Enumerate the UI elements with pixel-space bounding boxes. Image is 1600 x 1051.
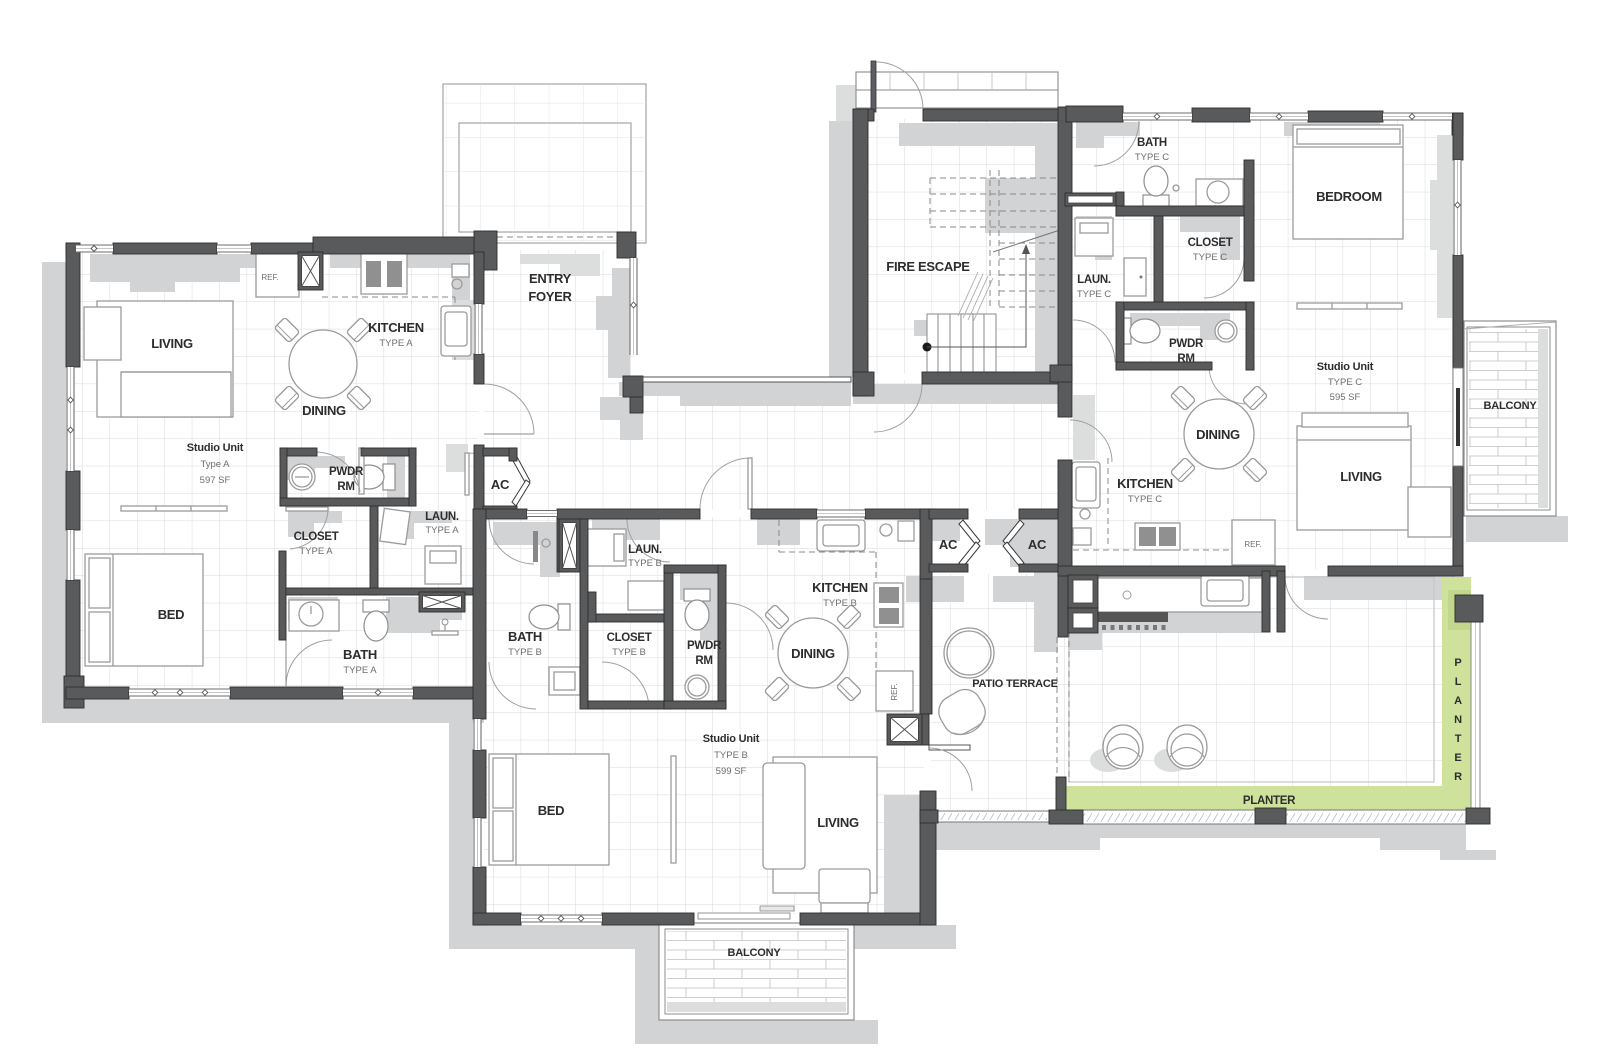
svg-text:T: T [1455, 733, 1462, 745]
svg-text:R: R [1454, 771, 1462, 783]
svg-text:TYPE A: TYPE A [299, 546, 333, 557]
svg-text:TYPE A: TYPE A [425, 525, 459, 536]
svg-text:A: A [1454, 695, 1462, 707]
svg-text:AC: AC [939, 537, 958, 552]
svg-text:CLOSET: CLOSET [607, 632, 652, 644]
svg-text:LIVING: LIVING [1340, 469, 1382, 484]
svg-text:TYPE A: TYPE A [379, 338, 413, 349]
svg-text:BALCONY: BALCONY [1484, 400, 1538, 412]
svg-text:Type A: Type A [200, 459, 230, 470]
svg-text:ENTRY: ENTRY [529, 271, 572, 286]
svg-text:TYPE C: TYPE C [1128, 494, 1162, 505]
svg-text:Studio Unit: Studio Unit [187, 442, 244, 454]
svg-text:BATH: BATH [343, 647, 377, 662]
svg-text:DINING: DINING [302, 403, 346, 418]
svg-text:DINING: DINING [1196, 427, 1240, 442]
svg-text:TYPE C: TYPE C [1328, 377, 1362, 388]
svg-text:REF.: REF. [261, 273, 278, 282]
svg-text:PWDR: PWDR [329, 466, 364, 478]
svg-text:Studio Unit: Studio Unit [703, 733, 760, 745]
svg-text:AC: AC [1028, 537, 1047, 552]
svg-text:TYPE C: TYPE C [1077, 289, 1111, 300]
svg-text:KITCHEN: KITCHEN [1117, 476, 1173, 491]
svg-text:FIRE ESCAPE: FIRE ESCAPE [886, 259, 970, 274]
svg-text:TYPE C: TYPE C [1193, 252, 1227, 263]
svg-text:PLANTER: PLANTER [1243, 795, 1296, 807]
svg-text:599 SF: 599 SF [716, 766, 747, 777]
svg-text:595 SF: 595 SF [1330, 392, 1361, 403]
svg-text:LAUN.: LAUN. [425, 511, 459, 523]
svg-text:PWDR: PWDR [687, 640, 722, 652]
svg-text:RM: RM [337, 481, 354, 493]
svg-text:P: P [1454, 657, 1461, 669]
svg-text:BALCONY: BALCONY [728, 947, 782, 959]
svg-text:TYPE A: TYPE A [343, 665, 377, 676]
svg-text:597 SF: 597 SF [200, 475, 231, 486]
svg-text:LIVING: LIVING [151, 336, 193, 351]
svg-text:LAUN.: LAUN. [1077, 274, 1111, 286]
svg-text:RM: RM [1177, 353, 1194, 365]
svg-text:FOYER: FOYER [528, 289, 572, 304]
svg-text:Studio Unit: Studio Unit [1317, 361, 1374, 373]
svg-text:E: E [1454, 752, 1461, 764]
svg-text:LIVING: LIVING [817, 815, 859, 830]
svg-text:BED: BED [158, 607, 185, 622]
svg-text:CLOSET: CLOSET [294, 531, 339, 543]
svg-text:TYPE C: TYPE C [1135, 152, 1169, 163]
svg-text:BATH: BATH [508, 629, 542, 644]
svg-text:TYPE B: TYPE B [823, 598, 857, 609]
svg-text:RM: RM [695, 655, 712, 667]
svg-text:BATH: BATH [1137, 137, 1167, 149]
svg-text:PWDR: PWDR [1169, 338, 1204, 350]
svg-text:DINING: DINING [791, 646, 835, 661]
svg-text:N: N [1454, 714, 1462, 726]
svg-text:BED: BED [538, 803, 565, 818]
svg-text:TYPE B: TYPE B [628, 558, 662, 569]
svg-text:KITCHEN: KITCHEN [812, 580, 868, 595]
svg-text:BEDROOM: BEDROOM [1316, 189, 1382, 204]
svg-text:TYPE B: TYPE B [612, 647, 646, 658]
svg-text:PATIO TERRACE: PATIO TERRACE [972, 678, 1058, 690]
svg-text:L: L [1455, 676, 1462, 688]
svg-text:LAUN.: LAUN. [628, 544, 662, 556]
svg-text:REF.: REF. [1244, 540, 1261, 549]
svg-text:KITCHEN: KITCHEN [368, 320, 424, 335]
svg-text:CLOSET: CLOSET [1188, 237, 1233, 249]
svg-text:AC: AC [491, 477, 510, 492]
svg-text:TYPE B: TYPE B [714, 750, 748, 761]
svg-text:REF.: REF. [890, 683, 899, 700]
svg-text:TYPE B: TYPE B [508, 647, 542, 658]
